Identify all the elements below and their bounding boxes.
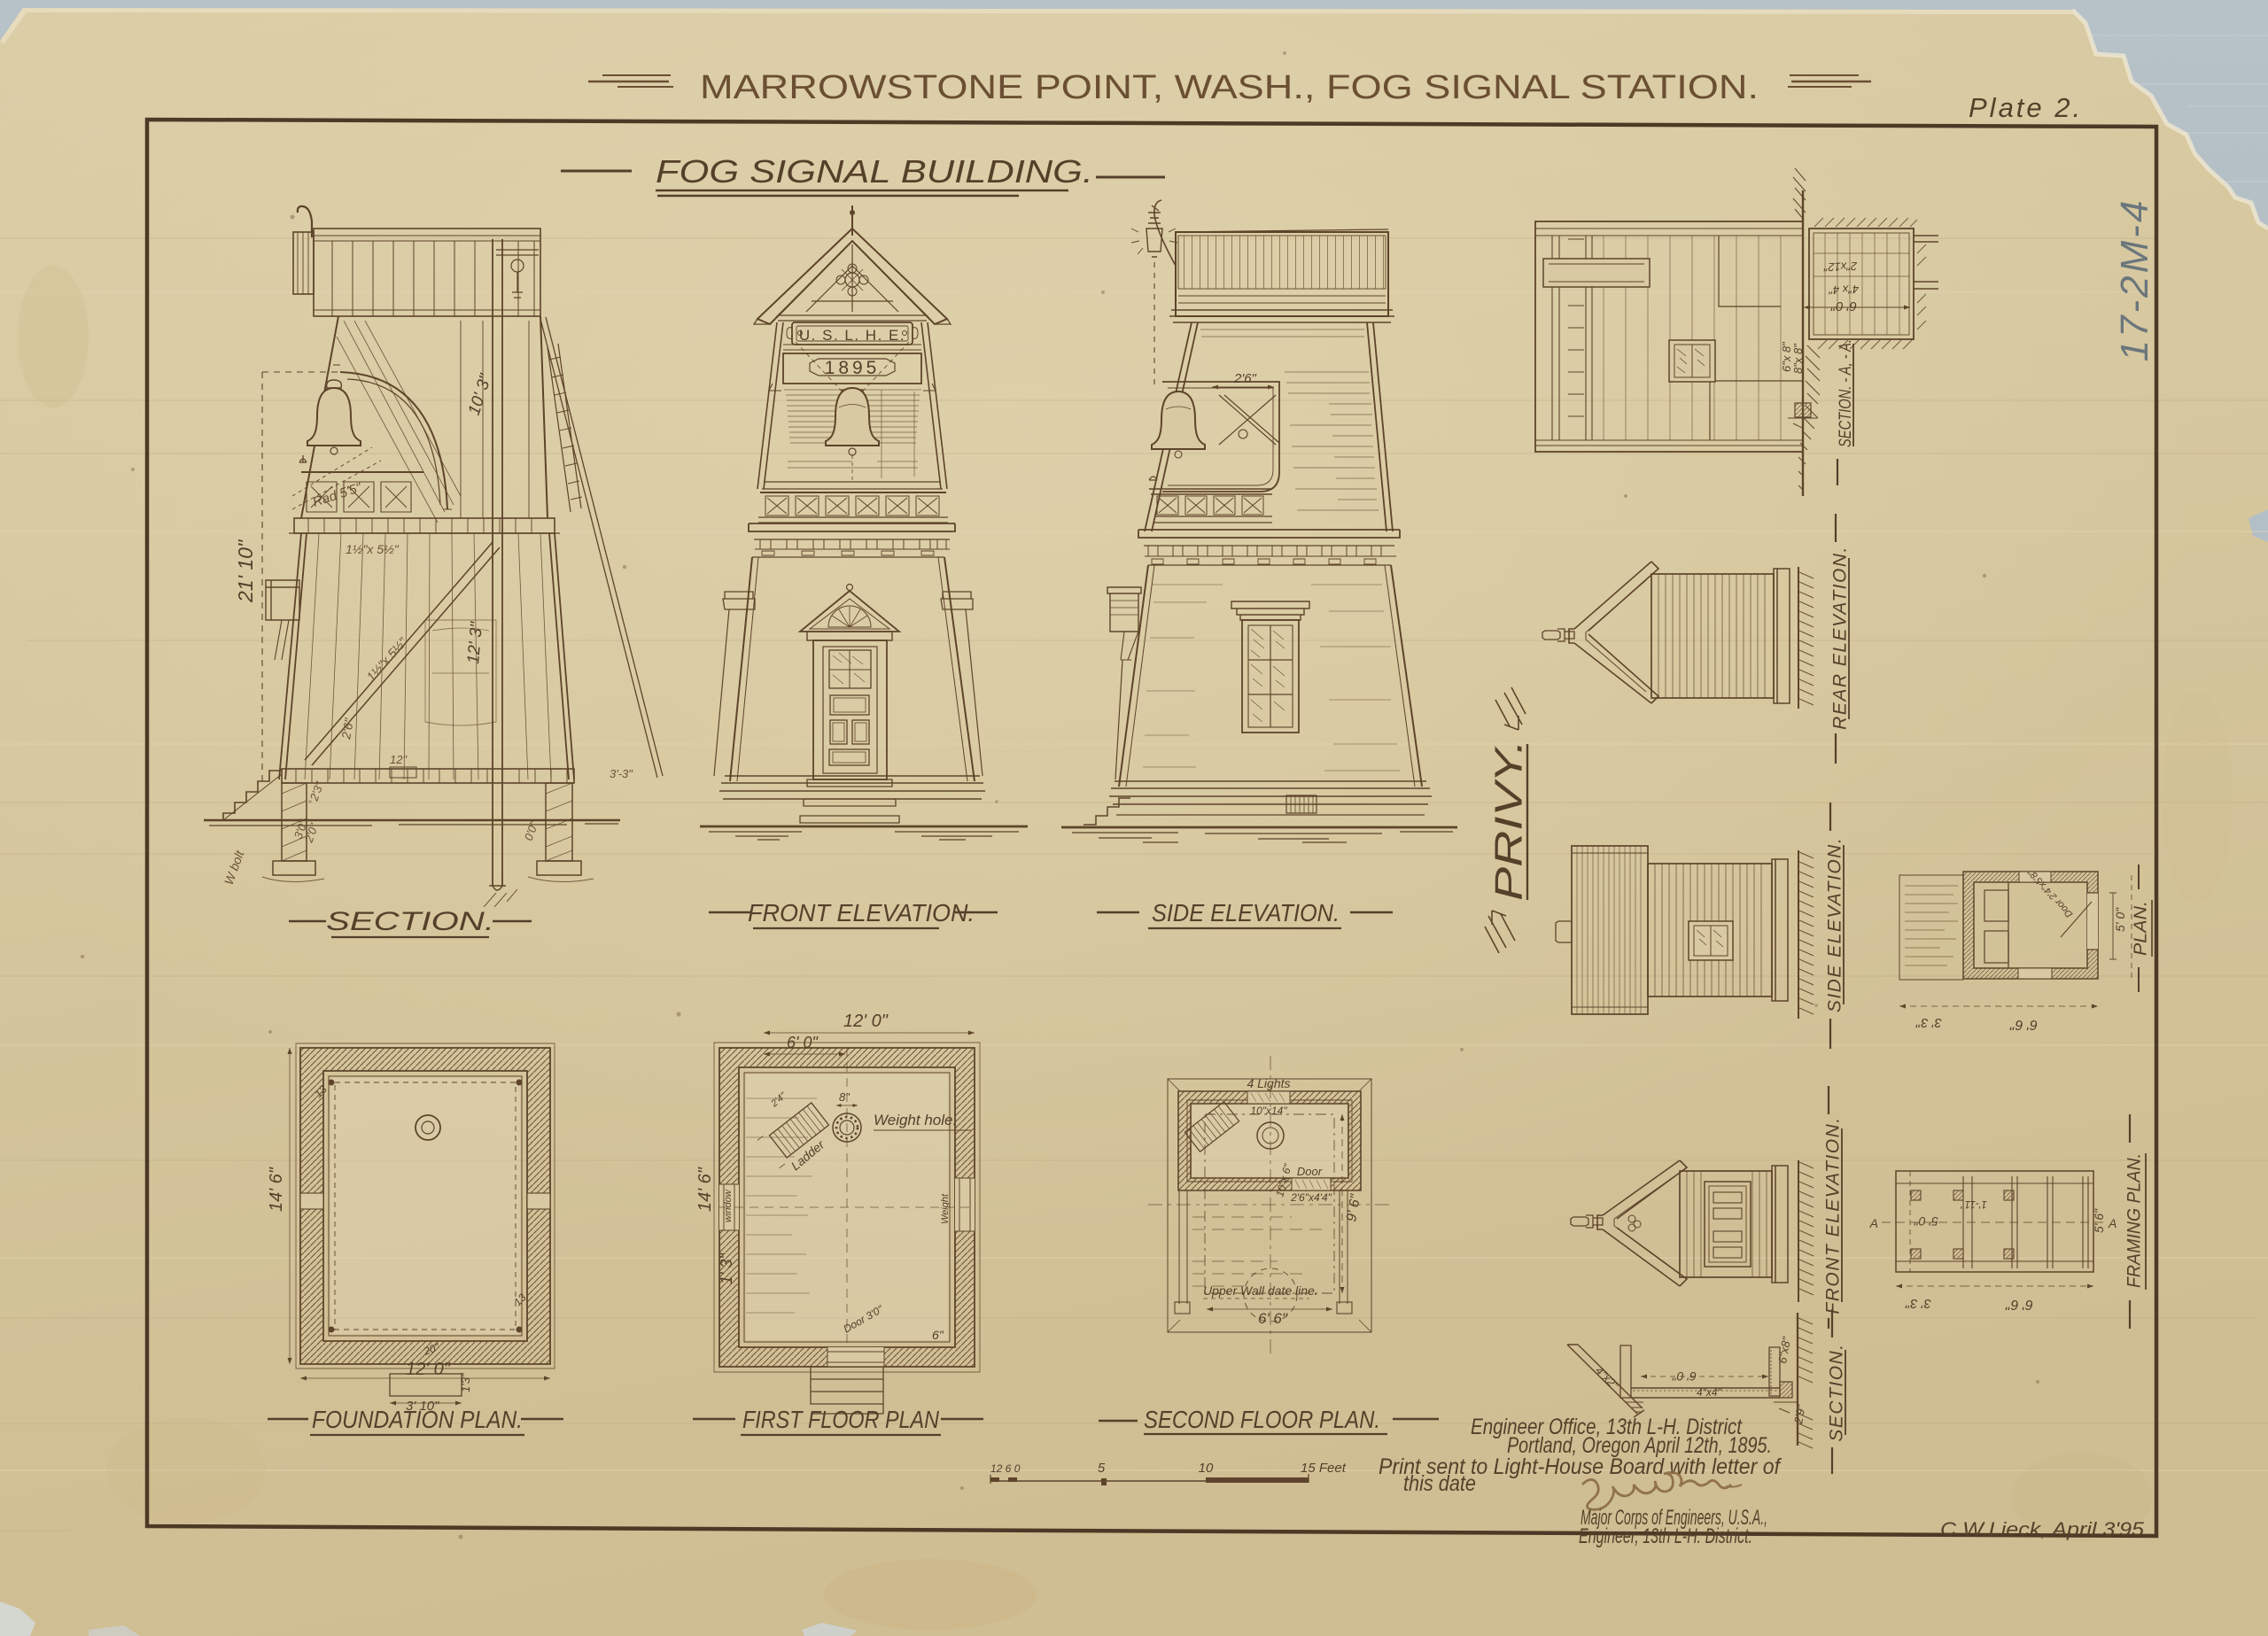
svg-text:5' 6": 5' 6" [2092, 1208, 2106, 1233]
svg-text:PLAN.: PLAN. [2131, 901, 2150, 956]
svg-text:6' 0": 6' 0" [787, 1034, 819, 1051]
svg-text:10"x14": 10"x14" [1250, 1105, 1287, 1117]
svg-text:FRONT ELEVATION.: FRONT ELEVATION. [748, 899, 975, 927]
svg-text:Engineer, 13th L-H. District.: Engineer, 13th L-H. District. [1579, 1524, 1752, 1548]
svg-text:window: window [723, 1189, 734, 1222]
svg-text:Weight: Weight [940, 1193, 951, 1224]
svg-text:12 6 0: 12 6 0 [990, 1462, 1021, 1475]
svg-text:6' 0": 6' 0" [1672, 1369, 1697, 1384]
svg-text:FOUNDATION PLAN.: FOUNDATION PLAN. [312, 1406, 523, 1433]
svg-text:6": 6" [932, 1328, 944, 1342]
svg-text:SECTION.: SECTION. [1827, 1343, 1847, 1441]
svg-text:MARROWSTONE POINT, WASH., FOG: MARROWSTONE POINT, WASH., FOG SIGNAL STA… [700, 69, 1759, 106]
svg-text:8": 8" [839, 1090, 850, 1104]
svg-text:1'-11": 1'-11" [1961, 1198, 1987, 1211]
svg-text:FIRST FLOOR PLAN: FIRST FLOOR PLAN [742, 1406, 940, 1433]
svg-text:Plate 2.: Plate 2. [1969, 92, 2083, 123]
svg-text:10: 10 [1199, 1461, 1214, 1476]
svg-text:SECTION.: SECTION. [326, 907, 494, 936]
svg-text:6' 6": 6' 6" [2005, 1297, 2033, 1312]
svg-text:A: A [1869, 1216, 1878, 1230]
svg-text:12' 0": 12' 0" [406, 1360, 451, 1379]
svg-text:14' 6": 14' 6" [695, 1167, 715, 1212]
svg-text:5' 0": 5' 0" [2113, 907, 2127, 932]
svg-text:3' 3": 3' 3" [1905, 1296, 1931, 1311]
svg-text:1895: 1895 [825, 358, 881, 378]
svg-text:15 Feet: 15 Feet [1301, 1461, 1347, 1476]
svg-text:6' 0": 6' 0" [1830, 299, 1857, 314]
svg-text:SECOND FLOOR PLAN.: SECOND FLOOR PLAN. [1144, 1406, 1380, 1433]
svg-text:17-2M-4: 17-2M-4 [2113, 198, 2156, 362]
svg-text:Weight hole.: Weight hole. [874, 1112, 957, 1128]
svg-text:3'-3": 3'-3" [610, 767, 633, 780]
svg-text:8"x 8": 8"x 8" [1791, 343, 1805, 374]
svg-text:PRIVY.: PRIVY. [1487, 740, 1531, 901]
svg-text:SIDE ELEVATION.: SIDE ELEVATION. [1825, 837, 1845, 1012]
svg-text:SIDE ELEVATION.: SIDE ELEVATION. [1152, 899, 1340, 927]
svg-text:3' 3": 3' 3" [1915, 1015, 1942, 1030]
svg-text:5: 5 [1098, 1461, 1106, 1476]
svg-text:Door: Door [1297, 1165, 1323, 1178]
svg-text:5' 0": 5' 0" [1914, 1214, 1938, 1229]
svg-text:6' 6": 6' 6" [2009, 1017, 2038, 1032]
svg-text:C.W.Lieck, April 3'95: C.W.Lieck, April 3'95 [1940, 1518, 2145, 1540]
svg-text:1½"x 5½": 1½"x 5½" [346, 542, 400, 556]
svg-text:14' 6": 14' 6" [267, 1167, 286, 1212]
svg-text:6' 6": 6' 6" [1258, 1310, 1288, 1327]
svg-text:Upper Wall date line.: Upper Wall date line. [1203, 1283, 1318, 1298]
svg-text:4 Lights: 4 Lights [1247, 1076, 1290, 1090]
svg-text:4"x4": 4"x4" [1697, 1386, 1722, 1399]
svg-text:2'6"x4'4": 2'6"x4'4" [1290, 1191, 1332, 1204]
svg-text:FRONT ELEVATION.: FRONT ELEVATION. [1823, 1116, 1844, 1314]
svg-text:4"x 4": 4"x 4" [1828, 283, 1860, 297]
svg-text:REAR ELEVATION.: REAR ELEVATION. [1830, 546, 1851, 730]
svg-text:12' 3": 12' 3" [464, 620, 486, 664]
svg-text:1'3": 1'3" [459, 1372, 472, 1392]
svg-text:FOG SIGNAL BUILDING.: FOG SIGNAL BUILDING. [656, 153, 1093, 190]
svg-text:1' 3": 1' 3" [718, 1252, 735, 1284]
svg-text:U. S. L. H. E.: U. S. L. H. E. [799, 327, 905, 344]
svg-text:2'6": 2'6" [1233, 371, 1257, 386]
svg-text:this date: this date [1403, 1471, 1476, 1496]
svg-text:2"x12": 2"x12" [1822, 260, 1858, 274]
svg-text:FRAMING PLAN.: FRAMING PLAN. [2124, 1153, 2145, 1288]
svg-text:12' 0": 12' 0" [843, 1012, 889, 1031]
svg-text:21' 10": 21' 10" [234, 539, 257, 603]
svg-text:12": 12" [390, 753, 408, 766]
svg-text:A: A [2108, 1216, 2117, 1230]
svg-text:SECTION. - A, - A.: SECTION. - A, - A. [1837, 339, 1855, 447]
